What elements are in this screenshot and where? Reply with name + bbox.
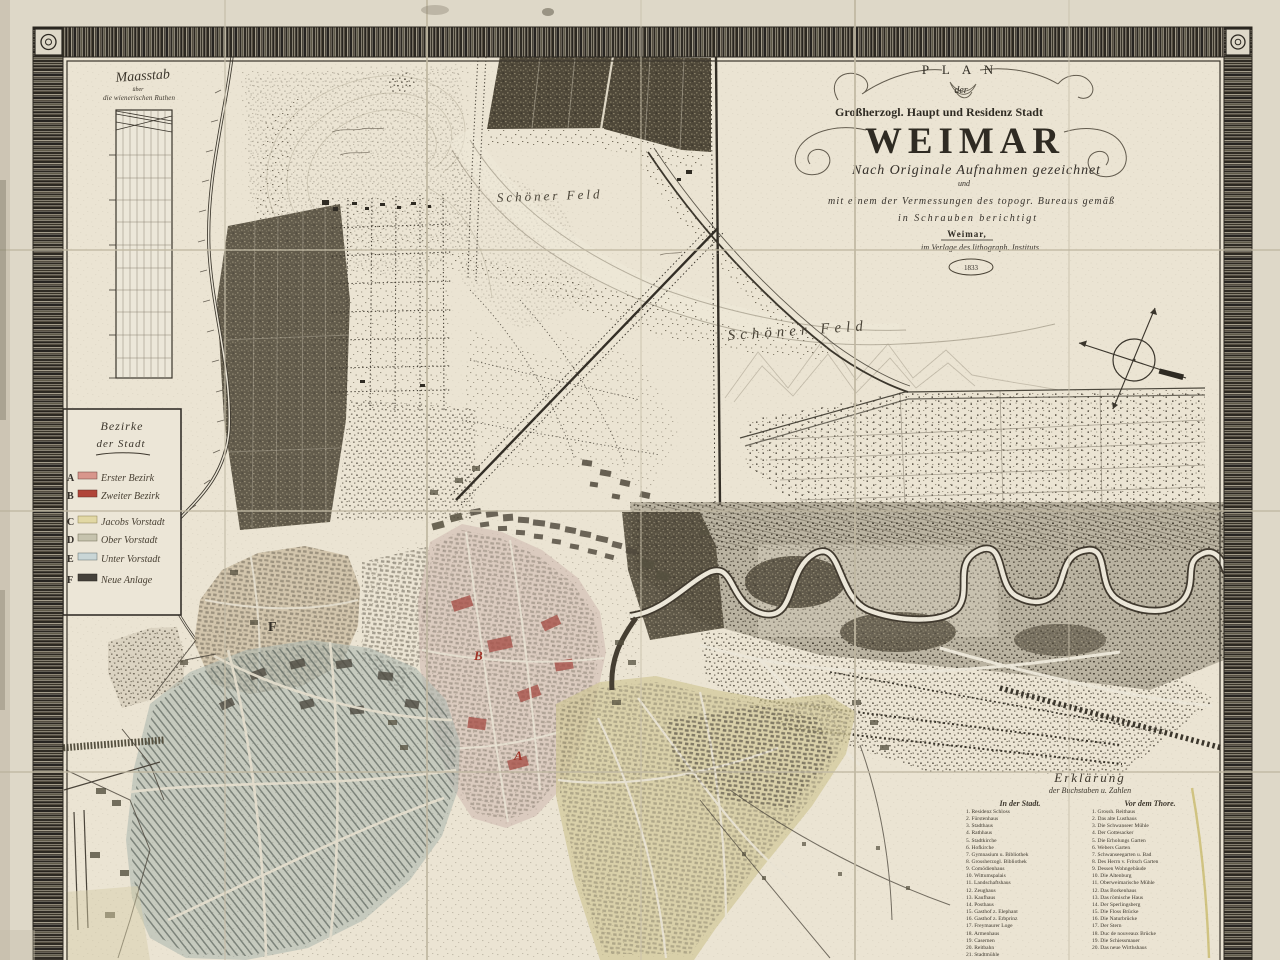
svg-text:Vor dem Thore.: Vor dem Thore. [1124, 799, 1175, 808]
svg-text:B: B [67, 491, 74, 502]
svg-text:8. Des Herrn v. Fritsch Garten: 8. Des Herrn v. Fritsch Garten [1092, 859, 1159, 865]
svg-text:8. Grossherzogl. Bibliothek: 8. Grossherzogl. Bibliothek [966, 859, 1027, 865]
svg-text:4. Rathhaus: 4. Rathhaus [966, 830, 992, 836]
svg-text:13. Kaufhaus: 13. Kaufhaus [966, 894, 995, 901]
svg-text:die wienerischen Ruthen: die wienerischen Ruthen [103, 94, 176, 102]
svg-text:14. Posthaus: 14. Posthaus [966, 902, 994, 908]
svg-text:1833: 1833 [964, 264, 979, 272]
svg-text:C: C [67, 517, 74, 528]
svg-text:7. Schwanseegarten u. Bad: 7. Schwanseegarten u. Bad [1092, 852, 1152, 858]
svg-text:9. Comödienhaus: 9. Comödienhaus [966, 866, 1005, 872]
svg-text:der: der [954, 85, 967, 96]
svg-text:4. Der Gottesacker: 4. Der Gottesacker [1092, 830, 1134, 836]
svg-text:18. Armenhaus: 18. Armenhaus [966, 931, 999, 937]
svg-text:16. Gasthof z. Erbprinz: 16. Gasthof z. Erbprinz [966, 915, 1018, 922]
svg-text:5. Die Erholungs Garten: 5. Die Erholungs Garten [1092, 838, 1146, 844]
svg-text:13. Das römische Haus: 13. Das römische Haus [1092, 895, 1143, 901]
svg-text:10. Die Altenburg: 10. Die Altenburg [1092, 873, 1132, 879]
svg-text:6. Hofkirche: 6. Hofkirche [966, 844, 994, 851]
svg-text:16. Die Naturbrücke: 16. Die Naturbrücke [1092, 916, 1138, 922]
svg-text:Nach Originale Aufnahmen gezei: Nach Originale Aufnahmen gezeichnet [851, 163, 1101, 178]
svg-text:mit einem der Vermessungen des: mit einem der Vermessungen des topogr. B… [828, 196, 1114, 207]
svg-text:WEIMAR: WEIMAR [865, 121, 1065, 162]
svg-text:11. Landschaftshaus: 11. Landschaftshaus [966, 879, 1011, 886]
svg-text:3. Stadthaus: 3. Stadthaus [966, 823, 993, 829]
svg-text:1. Residenz Schloss: 1. Residenz Schloss [966, 809, 1010, 815]
svg-text:A: A [67, 473, 75, 484]
svg-text:19. Die Schiessmauer: 19. Die Schiessmauer [1092, 938, 1140, 944]
svg-text:17. Der Stern: 17. Der Stern [1092, 923, 1122, 929]
svg-text:Weimar,: Weimar, [947, 229, 986, 239]
svg-text:7. Gymnasium u. Bibliothek: 7. Gymnasium u. Bibliothek [966, 852, 1029, 858]
svg-text:11. Oberweimarische Mühle: 11. Oberweimarische Mühle [1092, 880, 1155, 886]
svg-text:Bezirke: Bezirke [101, 419, 144, 433]
svg-text:15. Die Floss Brücke: 15. Die Floss Brücke [1092, 909, 1139, 915]
svg-text:2. Fürstenhaus: 2. Fürstenhaus [966, 816, 998, 822]
svg-text:D: D [67, 535, 74, 546]
svg-text:P L A N: P L A N [922, 62, 998, 77]
svg-text:Neue Anlage: Neue Anlage [100, 575, 153, 586]
svg-text:17. Freymaurer Loge: 17. Freymaurer Loge [966, 923, 1013, 929]
svg-text:9. Dessen Wohngebäude: 9. Dessen Wohngebäude [1092, 866, 1147, 872]
svg-text:der Buchstaben u. Zahlen: der Buchstaben u. Zahlen [1049, 786, 1131, 795]
svg-text:Erster Bezirk: Erster Bezirk [100, 473, 155, 484]
svg-text:2. Das alte Lusthaus: 2. Das alte Lusthaus [1092, 816, 1137, 822]
svg-text:F: F [67, 575, 73, 586]
svg-text:19. Casernen: 19. Casernen [966, 938, 995, 944]
svg-text:E: E [67, 554, 74, 565]
svg-text:10. Wittumspalais: 10. Wittumspalais [966, 873, 1006, 879]
svg-text:Großherzogl. Haupt und Residen: Großherzogl. Haupt und Residenz Stadt [835, 105, 1043, 119]
svg-text:12. Zeughaus: 12. Zeughaus [966, 888, 996, 894]
svg-text:12. Das Borkenhaus: 12. Das Borkenhaus [1092, 888, 1136, 894]
svg-text:20. Reitbahn: 20. Reitbahn [966, 945, 994, 951]
svg-text:21. Stadtmühle: 21. Stadtmühle [966, 952, 1000, 958]
svg-text:15. Gasthof z. Elephant: 15. Gasthof z. Elephant [966, 908, 1018, 915]
svg-text:Jacobs Vorstadt: Jacobs Vorstadt [101, 517, 165, 528]
svg-text:14. Der Sperlingsberg: 14. Der Sperlingsberg [1092, 902, 1141, 908]
svg-text:18. Duc de nouveaux Brücke: 18. Duc de nouveaux Brücke [1092, 931, 1157, 937]
svg-text:der Stadt: der Stadt [96, 438, 145, 450]
svg-text:In der Stadt.: In der Stadt. [998, 799, 1040, 808]
svg-text:1. Grossh. Reithaus: 1. Grossh. Reithaus [1092, 809, 1135, 815]
svg-text:über: über [133, 87, 145, 93]
svg-text:20. Das neue Wirthshaus: 20. Das neue Wirthshaus [1092, 945, 1147, 951]
svg-text:und: und [958, 179, 971, 188]
svg-text:Ober Vorstadt: Ober Vorstadt [101, 535, 158, 546]
svg-text:Zweiter Bezirk: Zweiter Bezirk [101, 491, 160, 502]
svg-text:3. Die Schwanseer Mühle: 3. Die Schwanseer Mühle [1092, 823, 1149, 829]
svg-text:6. Webers Garten: 6. Webers Garten [1092, 845, 1130, 851]
svg-text:5. Stadtkirche: 5. Stadtkirche [966, 838, 997, 844]
svg-text:Unter Vorstadt: Unter Vorstadt [101, 554, 160, 565]
